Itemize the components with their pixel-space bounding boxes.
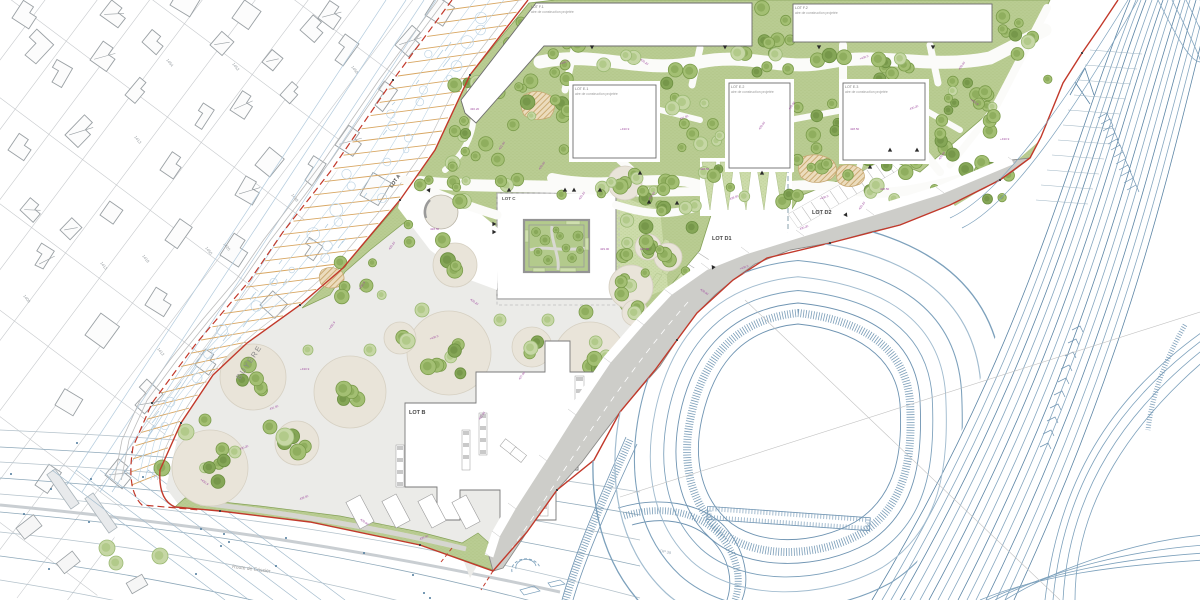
svg-text:428.50: 428.50 [430, 227, 440, 231]
svg-text:+430.9: +430.9 [1000, 137, 1010, 141]
svg-text:427.80: 427.80 [640, 247, 650, 251]
svg-text:+430.9: +430.9 [620, 127, 630, 131]
svg-text:+430.9: +430.9 [300, 367, 310, 371]
svg-text:428.50: 428.50 [850, 127, 860, 131]
svg-text:LOT E.1: LOT E.1 [575, 87, 588, 91]
svg-text:LOT F.1: LOT F.1 [531, 5, 544, 9]
svg-text:428.50: 428.50 [880, 187, 890, 191]
svg-text:LOT B: LOT B [409, 410, 426, 416]
svg-text:aire de construction projetée: aire de construction projetée [795, 11, 838, 15]
svg-text:LOT D2: LOT D2 [812, 210, 832, 216]
svg-text:LOT D1: LOT D1 [712, 236, 732, 242]
svg-text:LOT F.2: LOT F.2 [795, 6, 808, 10]
svg-text:LOT C: LOT C [502, 196, 516, 201]
svg-text:aire de construction projetée: aire de construction projetée [731, 90, 774, 94]
svg-text:LOT E.2: LOT E.2 [731, 85, 744, 89]
svg-text:429.00: 429.00 [600, 247, 610, 251]
svg-text:aire de construction projetée: aire de construction projetée [531, 10, 574, 14]
svg-text:aire de construction projetée: aire de construction projetée [845, 90, 888, 94]
svg-text:430.20: 430.20 [470, 107, 480, 111]
svg-text:aire de construction projetée: aire de construction projetée [575, 92, 618, 96]
svg-text:LOT E.3: LOT E.3 [845, 85, 858, 89]
svg-text:428.50: 428.50 [700, 167, 710, 171]
